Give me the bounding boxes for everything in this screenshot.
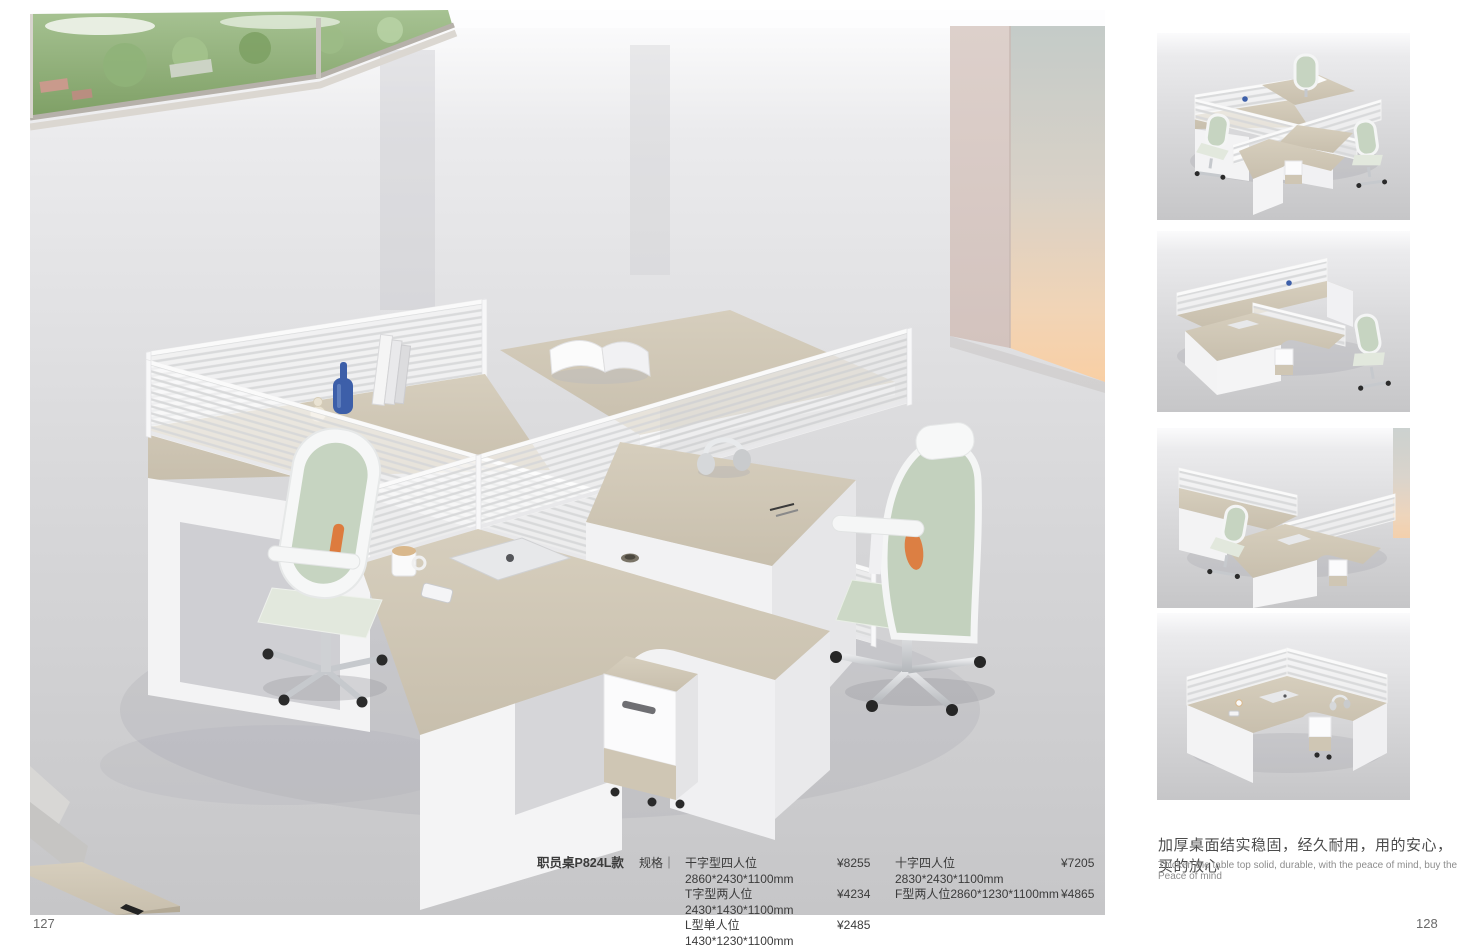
spec-price <box>1061 918 1113 949</box>
page-number-right: 128 <box>1416 916 1438 931</box>
spec-desc <box>895 918 1061 949</box>
chair-back <box>884 443 978 640</box>
spec-desc: 十字四人位2830*2430*1100mm <box>895 856 1061 887</box>
accent-wall <box>1393 428 1410 538</box>
magazine <box>550 340 650 384</box>
product-model: 职员桌P824L款 <box>537 856 639 887</box>
spec-desc: 干字型四人位2860*2430*1100mm <box>685 856 837 887</box>
spec-price: ¥7205 <box>1061 856 1113 887</box>
smartphone <box>1229 711 1239 716</box>
spec-desc: L型单人位1430*1230*1100mm <box>685 918 837 949</box>
window-mullion <box>316 18 321 78</box>
thumbnail-four-seat-cross-workstation <box>1157 33 1410 220</box>
page-number-left: 127 <box>33 916 55 931</box>
spec-price: ¥2485 <box>837 918 895 949</box>
spec-price: ¥4234 <box>837 887 895 918</box>
spec-desc: T字型两人位2430*1430*1100mm <box>685 887 837 918</box>
blue-bottle <box>1286 280 1292 286</box>
spec-label: 规格｜ <box>639 856 685 887</box>
thumbnail-t-shape-two-seat-workstation <box>1157 231 1410 412</box>
blue-bottle <box>1242 96 1248 102</box>
caption-english: Thicken the table top solid, durable, wi… <box>1158 860 1467 882</box>
spec-table: 职员桌P824L款 规格｜ 干字型四人位2860*2430*1100mm ¥82… <box>537 856 1113 949</box>
thumbnail-single-l-desk <box>1157 613 1410 800</box>
mug <box>1236 700 1242 706</box>
thumbnail-zigzag-two-seat-workstation <box>1157 428 1410 608</box>
accent-wall <box>950 26 1105 393</box>
spec-price: ¥8255 <box>837 856 895 887</box>
spec-desc: F型两人位2860*1230*1100mm <box>895 887 1061 918</box>
spec-price: ¥4865 <box>1061 887 1113 918</box>
main-product-photo <box>30 10 1105 915</box>
